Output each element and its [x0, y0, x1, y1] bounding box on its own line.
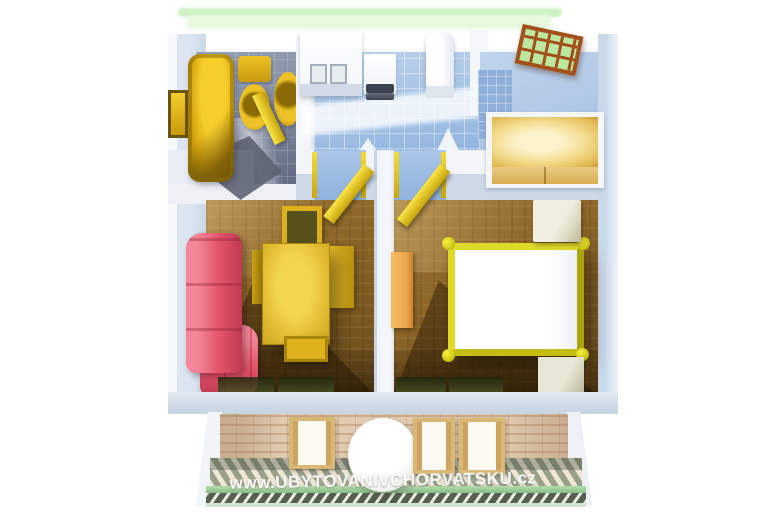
bed-post-ball — [442, 237, 455, 250]
dining-table — [262, 243, 330, 345]
kitchen-counter-front — [300, 84, 362, 96]
stove-control-panel — [366, 93, 394, 100]
door-frame — [394, 152, 399, 198]
bed-post-ball — [442, 349, 455, 362]
double-bed — [448, 243, 584, 356]
corner-sofa — [186, 233, 242, 373]
door-frame — [312, 152, 317, 198]
dining-chair-right — [328, 246, 354, 308]
sink-basin — [310, 64, 327, 84]
dining-chair-bottom — [284, 336, 328, 362]
wardrobe-doors — [492, 167, 598, 184]
hall-room-wall-inner-face — [446, 174, 490, 200]
house-right-wall — [598, 34, 618, 394]
toilet-tank — [238, 56, 271, 82]
refrigerator-front — [426, 86, 454, 98]
dresser — [391, 252, 413, 328]
floor-plan-render: www.UBYTOVANIVCHORVATSKU.cz — [0, 0, 768, 512]
terrace-chair — [459, 418, 505, 474]
terrace-chair — [289, 417, 335, 469]
hall-room-wall-segment — [446, 150, 490, 174]
stove-burner-panel — [366, 84, 394, 93]
grass-strip-soft — [186, 15, 552, 29]
house-bottom-wall — [168, 392, 618, 414]
wardrobe-top-face — [492, 117, 598, 167]
refrigerator — [426, 33, 454, 89]
bathtub — [188, 54, 234, 182]
sink-basin — [330, 64, 347, 84]
terrace-railing-base — [206, 503, 586, 507]
nightstand-upper — [533, 200, 581, 242]
bathroom-window — [168, 90, 188, 138]
terrace-chair — [413, 418, 455, 474]
